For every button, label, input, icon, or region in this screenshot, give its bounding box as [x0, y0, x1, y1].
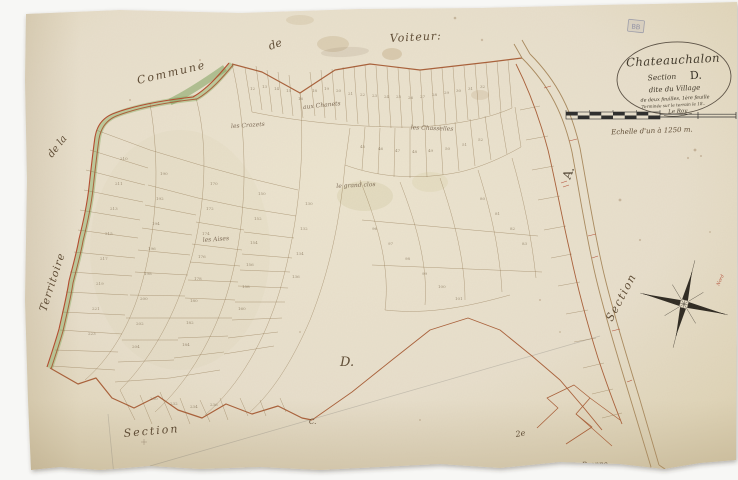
paper-grain-overlay [0, 0, 738, 480]
scanned-map-sheet: 1213141516181920212223242526272829303132… [0, 0, 738, 480]
cadastral-map-canvas: 1213141516181920212223242526272829303132… [0, 0, 738, 480]
